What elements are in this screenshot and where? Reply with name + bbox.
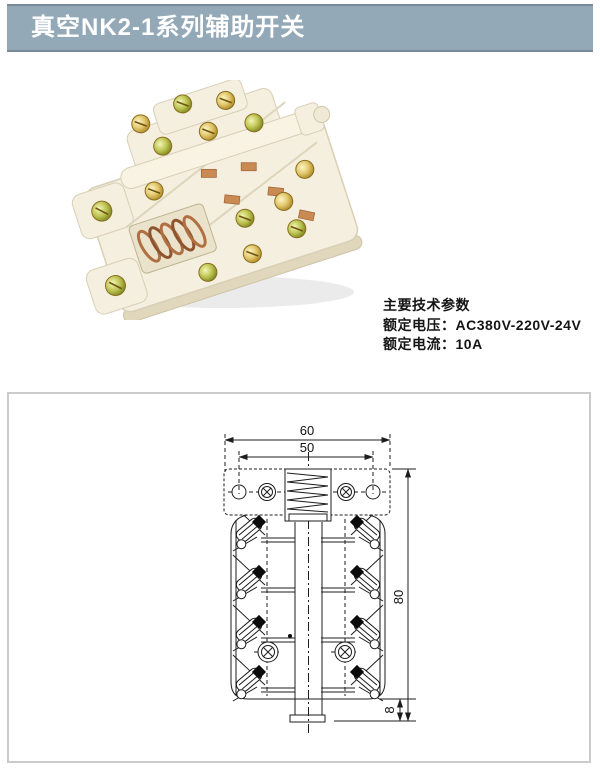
terminals xyxy=(230,505,386,701)
spec-rated-voltage: 额定电压：AC380V-220V-24V xyxy=(383,316,598,336)
terminal-left-4 xyxy=(230,655,295,701)
body-screws xyxy=(254,642,359,662)
dim-label-8: 8 xyxy=(382,706,397,713)
spec-value: AC380V-220V-24V xyxy=(456,317,582,333)
terminal-right-3 xyxy=(321,605,386,651)
product-photo xyxy=(62,80,372,320)
shaft-flange xyxy=(290,715,325,722)
top-plate xyxy=(224,469,390,521)
product-photo-illustration xyxy=(62,80,372,320)
terminal-right-2 xyxy=(321,555,386,601)
return-spring xyxy=(285,469,331,521)
dimension-80: 80 xyxy=(391,469,416,721)
tech-specs: 主要技术参数 额定电压：AC380V-220V-24V 额定电流：10A xyxy=(383,296,598,355)
page-title: 真空NK2-1系列辅助开关 xyxy=(7,4,593,52)
dim-label-60: 60 xyxy=(300,423,314,438)
spec-value: 10A xyxy=(456,336,483,352)
dimension-8: 8 xyxy=(334,699,416,721)
terminal-right-4 xyxy=(321,655,386,701)
dim-label-50: 50 xyxy=(300,440,314,455)
spec-label: 额定电压： xyxy=(383,317,456,333)
dimension-drawing: 60 50 80 8 xyxy=(7,392,591,763)
plate-screw-right xyxy=(338,484,355,501)
page-title-bar: 真空NK2-1系列辅助开关 xyxy=(7,4,593,52)
spec-rated-current: 额定电流：10A xyxy=(383,335,598,355)
terminal-left-2 xyxy=(230,555,295,601)
plate-screw-left xyxy=(259,484,276,501)
dimension-drawing-svg: 60 50 80 8 xyxy=(9,394,589,761)
dim-label-80: 80 xyxy=(391,590,406,604)
specs-heading: 主要技术参数 xyxy=(383,296,598,316)
spec-label: 额定电流： xyxy=(383,336,456,352)
